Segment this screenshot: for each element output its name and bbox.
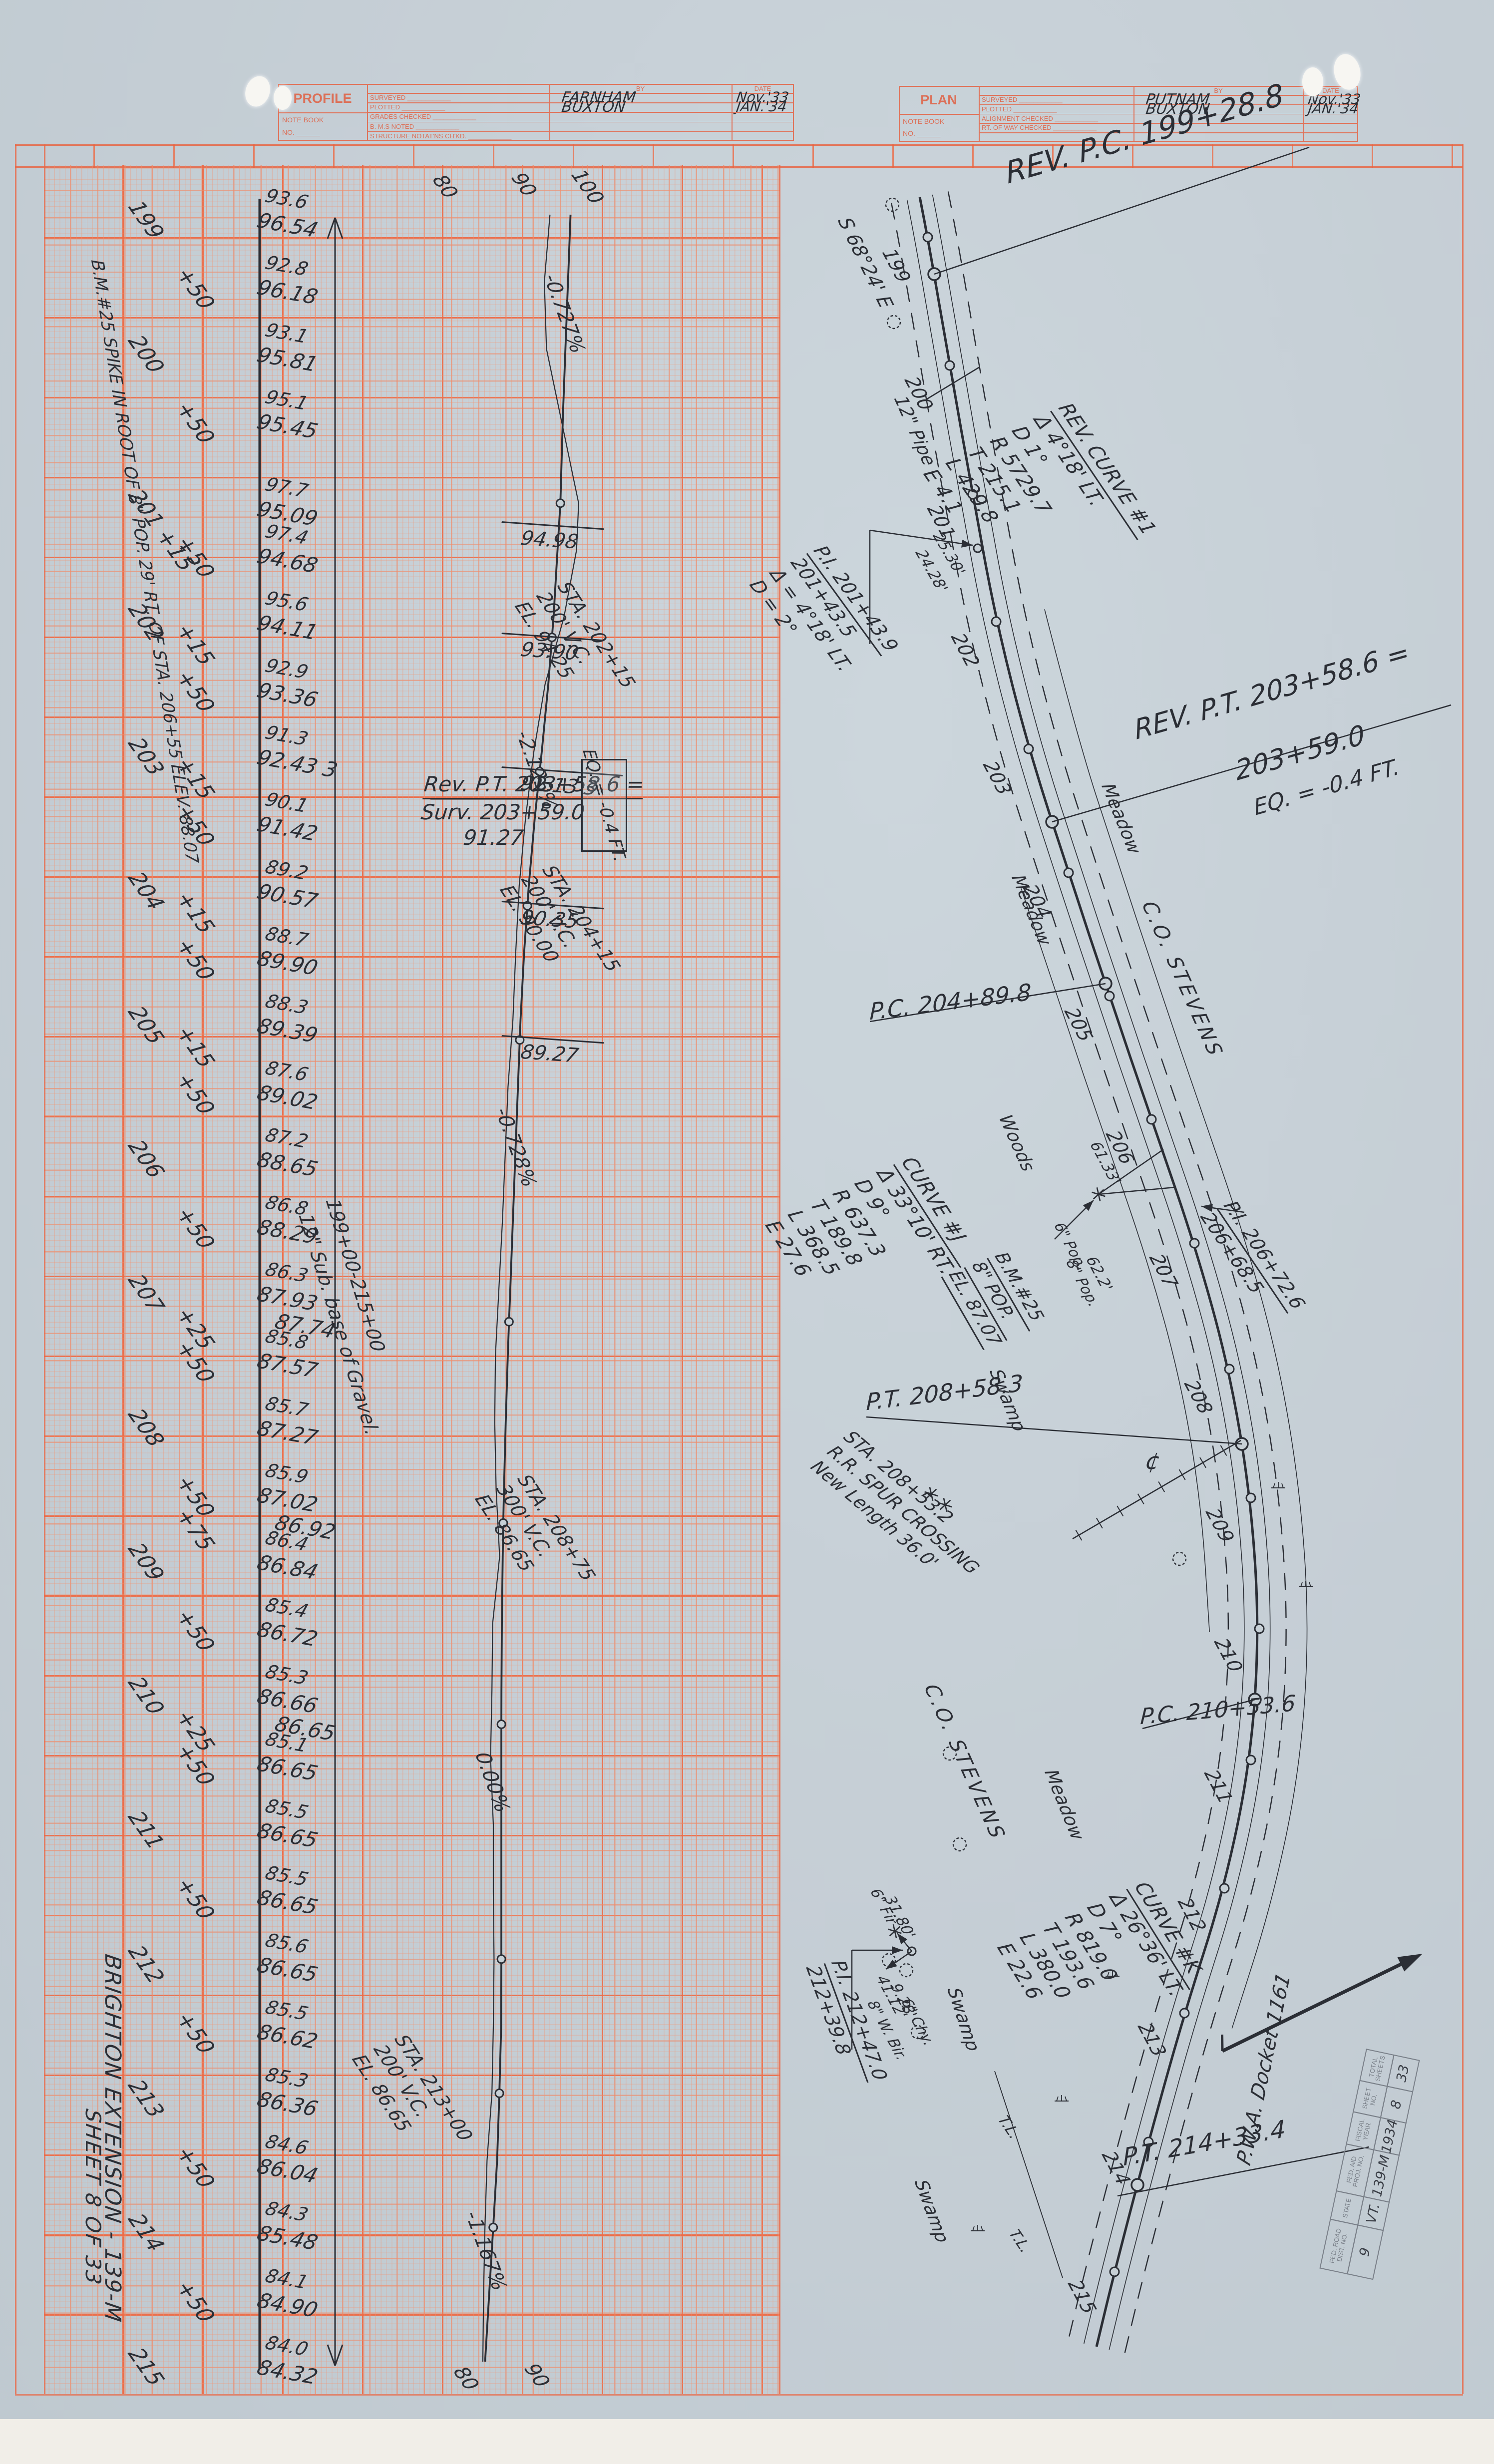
punch-hole [274, 86, 292, 110]
tree-symbol [882, 1954, 895, 1967]
equation-box-text: EQ. = -0.4 FT. [578, 747, 630, 863]
tree-symbol [900, 1964, 913, 1977]
sheet-number: SHEET 8 OF 33 [80, 2108, 106, 2288]
drawing-sheet: PROFILENOTE BOOKNO. ______BYDATESURVEYED… [0, 0, 1494, 2419]
north-arrow [1397, 1954, 1422, 1971]
tree-symbol [953, 1838, 966, 1851]
tree-symbol [887, 316, 900, 329]
equation-box: EQ. = -0.4 FT. [581, 759, 627, 852]
tree-symbol [1173, 1552, 1186, 1565]
paper-edge [0, 2419, 1494, 2464]
punch-hole [1302, 67, 1323, 96]
